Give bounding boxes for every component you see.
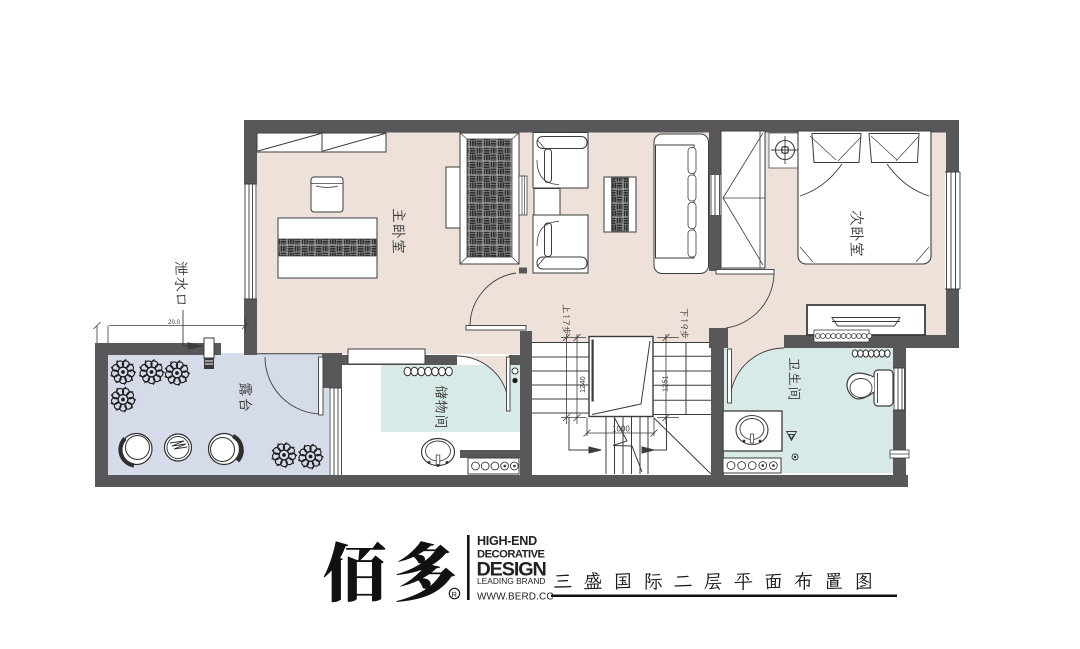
svg-text:20.0: 20.0 — [168, 319, 181, 326]
svg-text:1000: 1000 — [612, 425, 630, 434]
svg-text:1251: 1251 — [661, 375, 670, 392]
svg-text:R: R — [452, 590, 458, 599]
svg-text:WWW.BERD.CC: WWW.BERD.CC — [477, 592, 554, 603]
svg-text:HIGH-END: HIGH-END — [477, 534, 537, 548]
svg-text:LEADING BRAND: LEADING BRAND — [477, 576, 545, 586]
svg-text:1240: 1240 — [578, 376, 587, 393]
